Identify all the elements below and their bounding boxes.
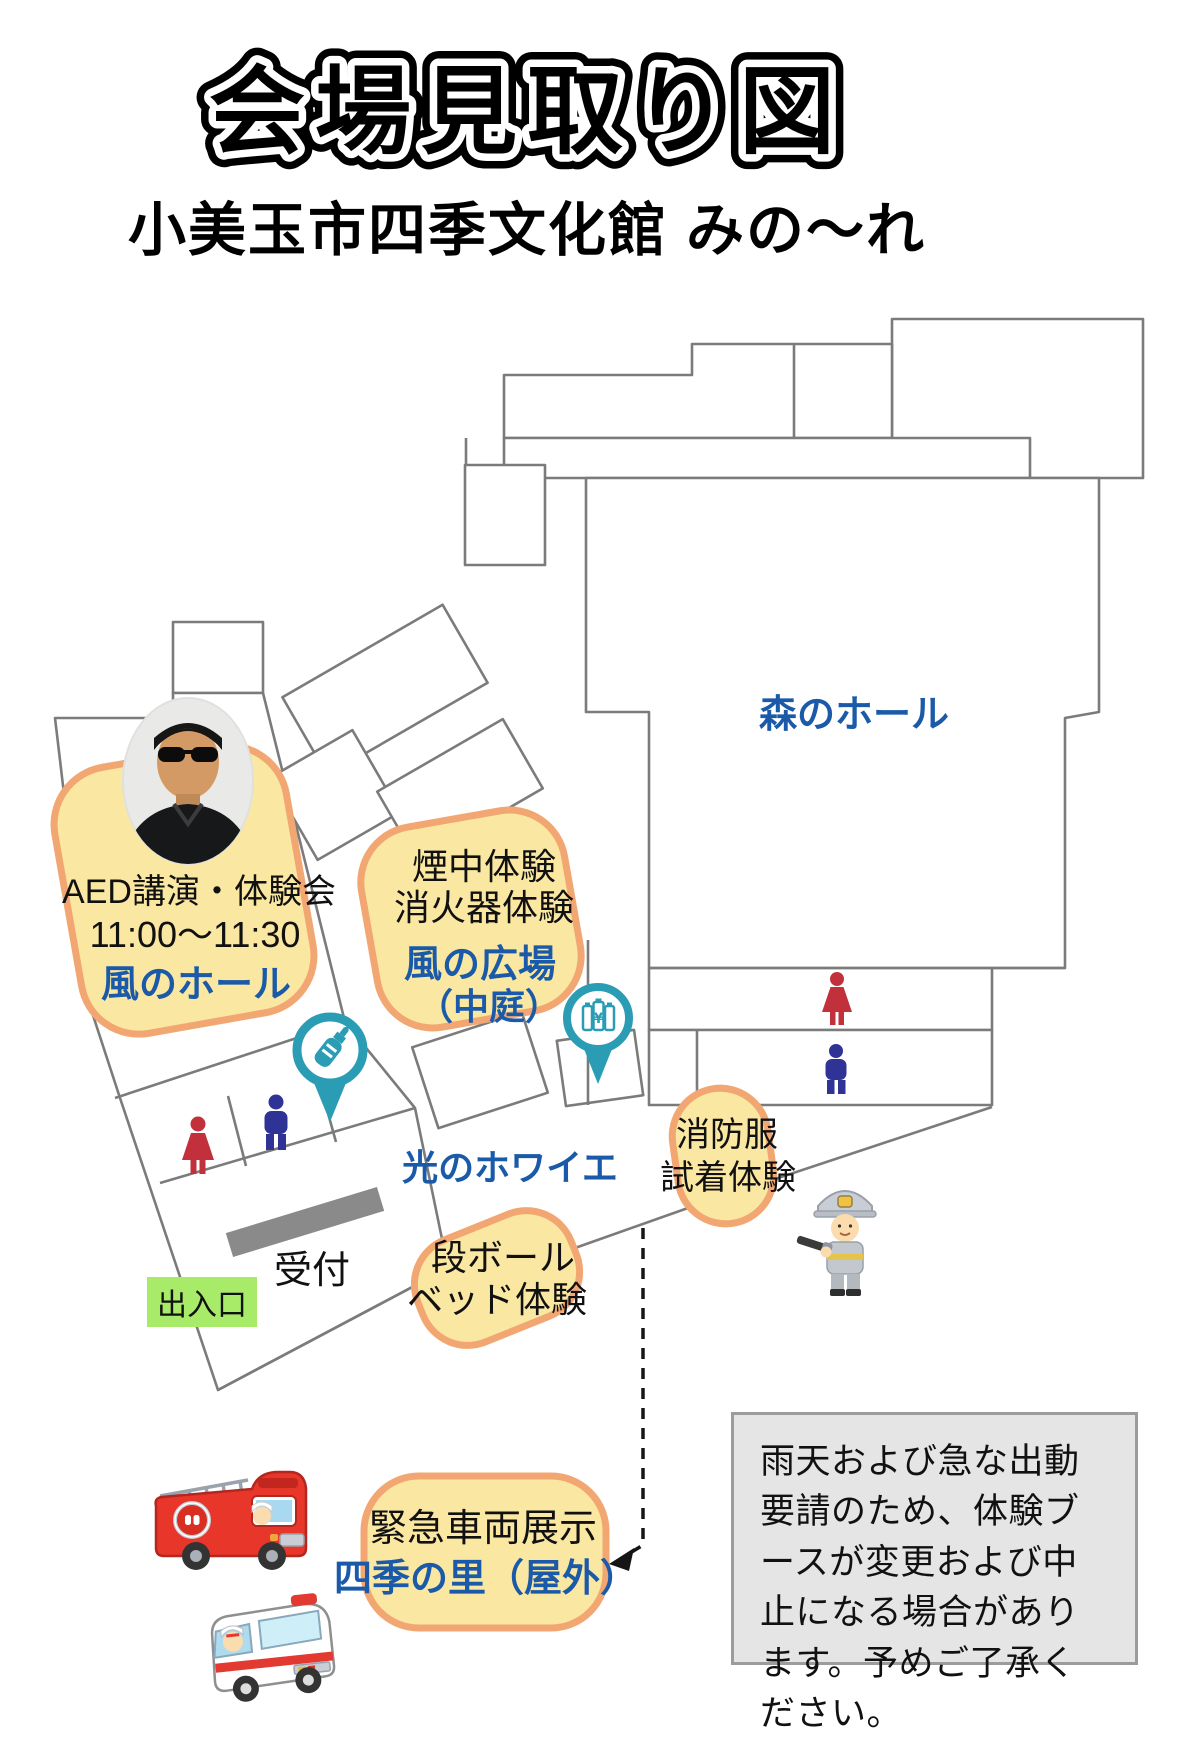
aed-time-label: 11:00〜11:30	[90, 917, 301, 953]
fire-suit-label-1: 消防服	[676, 1118, 778, 1152]
aed-event-label: AED講演・体験会	[62, 875, 336, 909]
svg-text:会場見取り図: 会場見取り図	[209, 56, 845, 168]
smoke-experience-label: 煙中体験	[412, 849, 556, 885]
entrance-label: 出入口	[157, 1280, 247, 1324]
weather-notice-text: 雨天および急な出動要請のため、体験ブースが変更および中止になる場合があります。予…	[760, 1437, 1109, 1739]
courtyard-label: （中庭）	[417, 989, 561, 1025]
ambulance-icon	[207, 1592, 337, 1705]
reception-label: 受付	[274, 1252, 350, 1290]
shiki-sato-label: 四季の里（屋外）	[334, 1560, 638, 1598]
vehicles-blob	[364, 1476, 606, 1628]
fire-truck-icon	[156, 1472, 306, 1570]
weather-notice: 雨天および急な出動要請のため、体験ブースが変更および中止になる場合があります。予…	[731, 1412, 1138, 1665]
vehicle-exhibit-label: 緊急車両展示	[369, 1510, 597, 1548]
wind-plaza-label: 風の広場	[404, 946, 556, 984]
svg-text:¥: ¥	[594, 1011, 604, 1027]
firefighter-character-icon	[795, 1191, 876, 1296]
cardboard-label-2: ベッド体験	[407, 1282, 587, 1318]
forest-hall-label: 森のホール	[759, 696, 949, 734]
woman-restroom-icon	[822, 972, 852, 1025]
fire-suit-label-2: 試着体験	[660, 1161, 796, 1195]
cardboard-label-1: 段ボール	[431, 1240, 575, 1276]
route-arrow-icon	[609, 1228, 643, 1571]
venue-name: 小美玉市四季文化館 みの〜れ	[128, 183, 926, 267]
entrance-badge: 出入口	[147, 1277, 257, 1327]
light-foyer-label: 光のホワイエ	[402, 1150, 618, 1186]
venue-map-poster: 会場見取り図 会場見取り図 会場見取り図 小美玉市四季文化館 みの〜れ	[0, 0, 1181, 1748]
extinguisher-experience-label: 消火器体験	[394, 890, 574, 926]
wind-hall-label: 風のホール	[101, 966, 291, 1004]
